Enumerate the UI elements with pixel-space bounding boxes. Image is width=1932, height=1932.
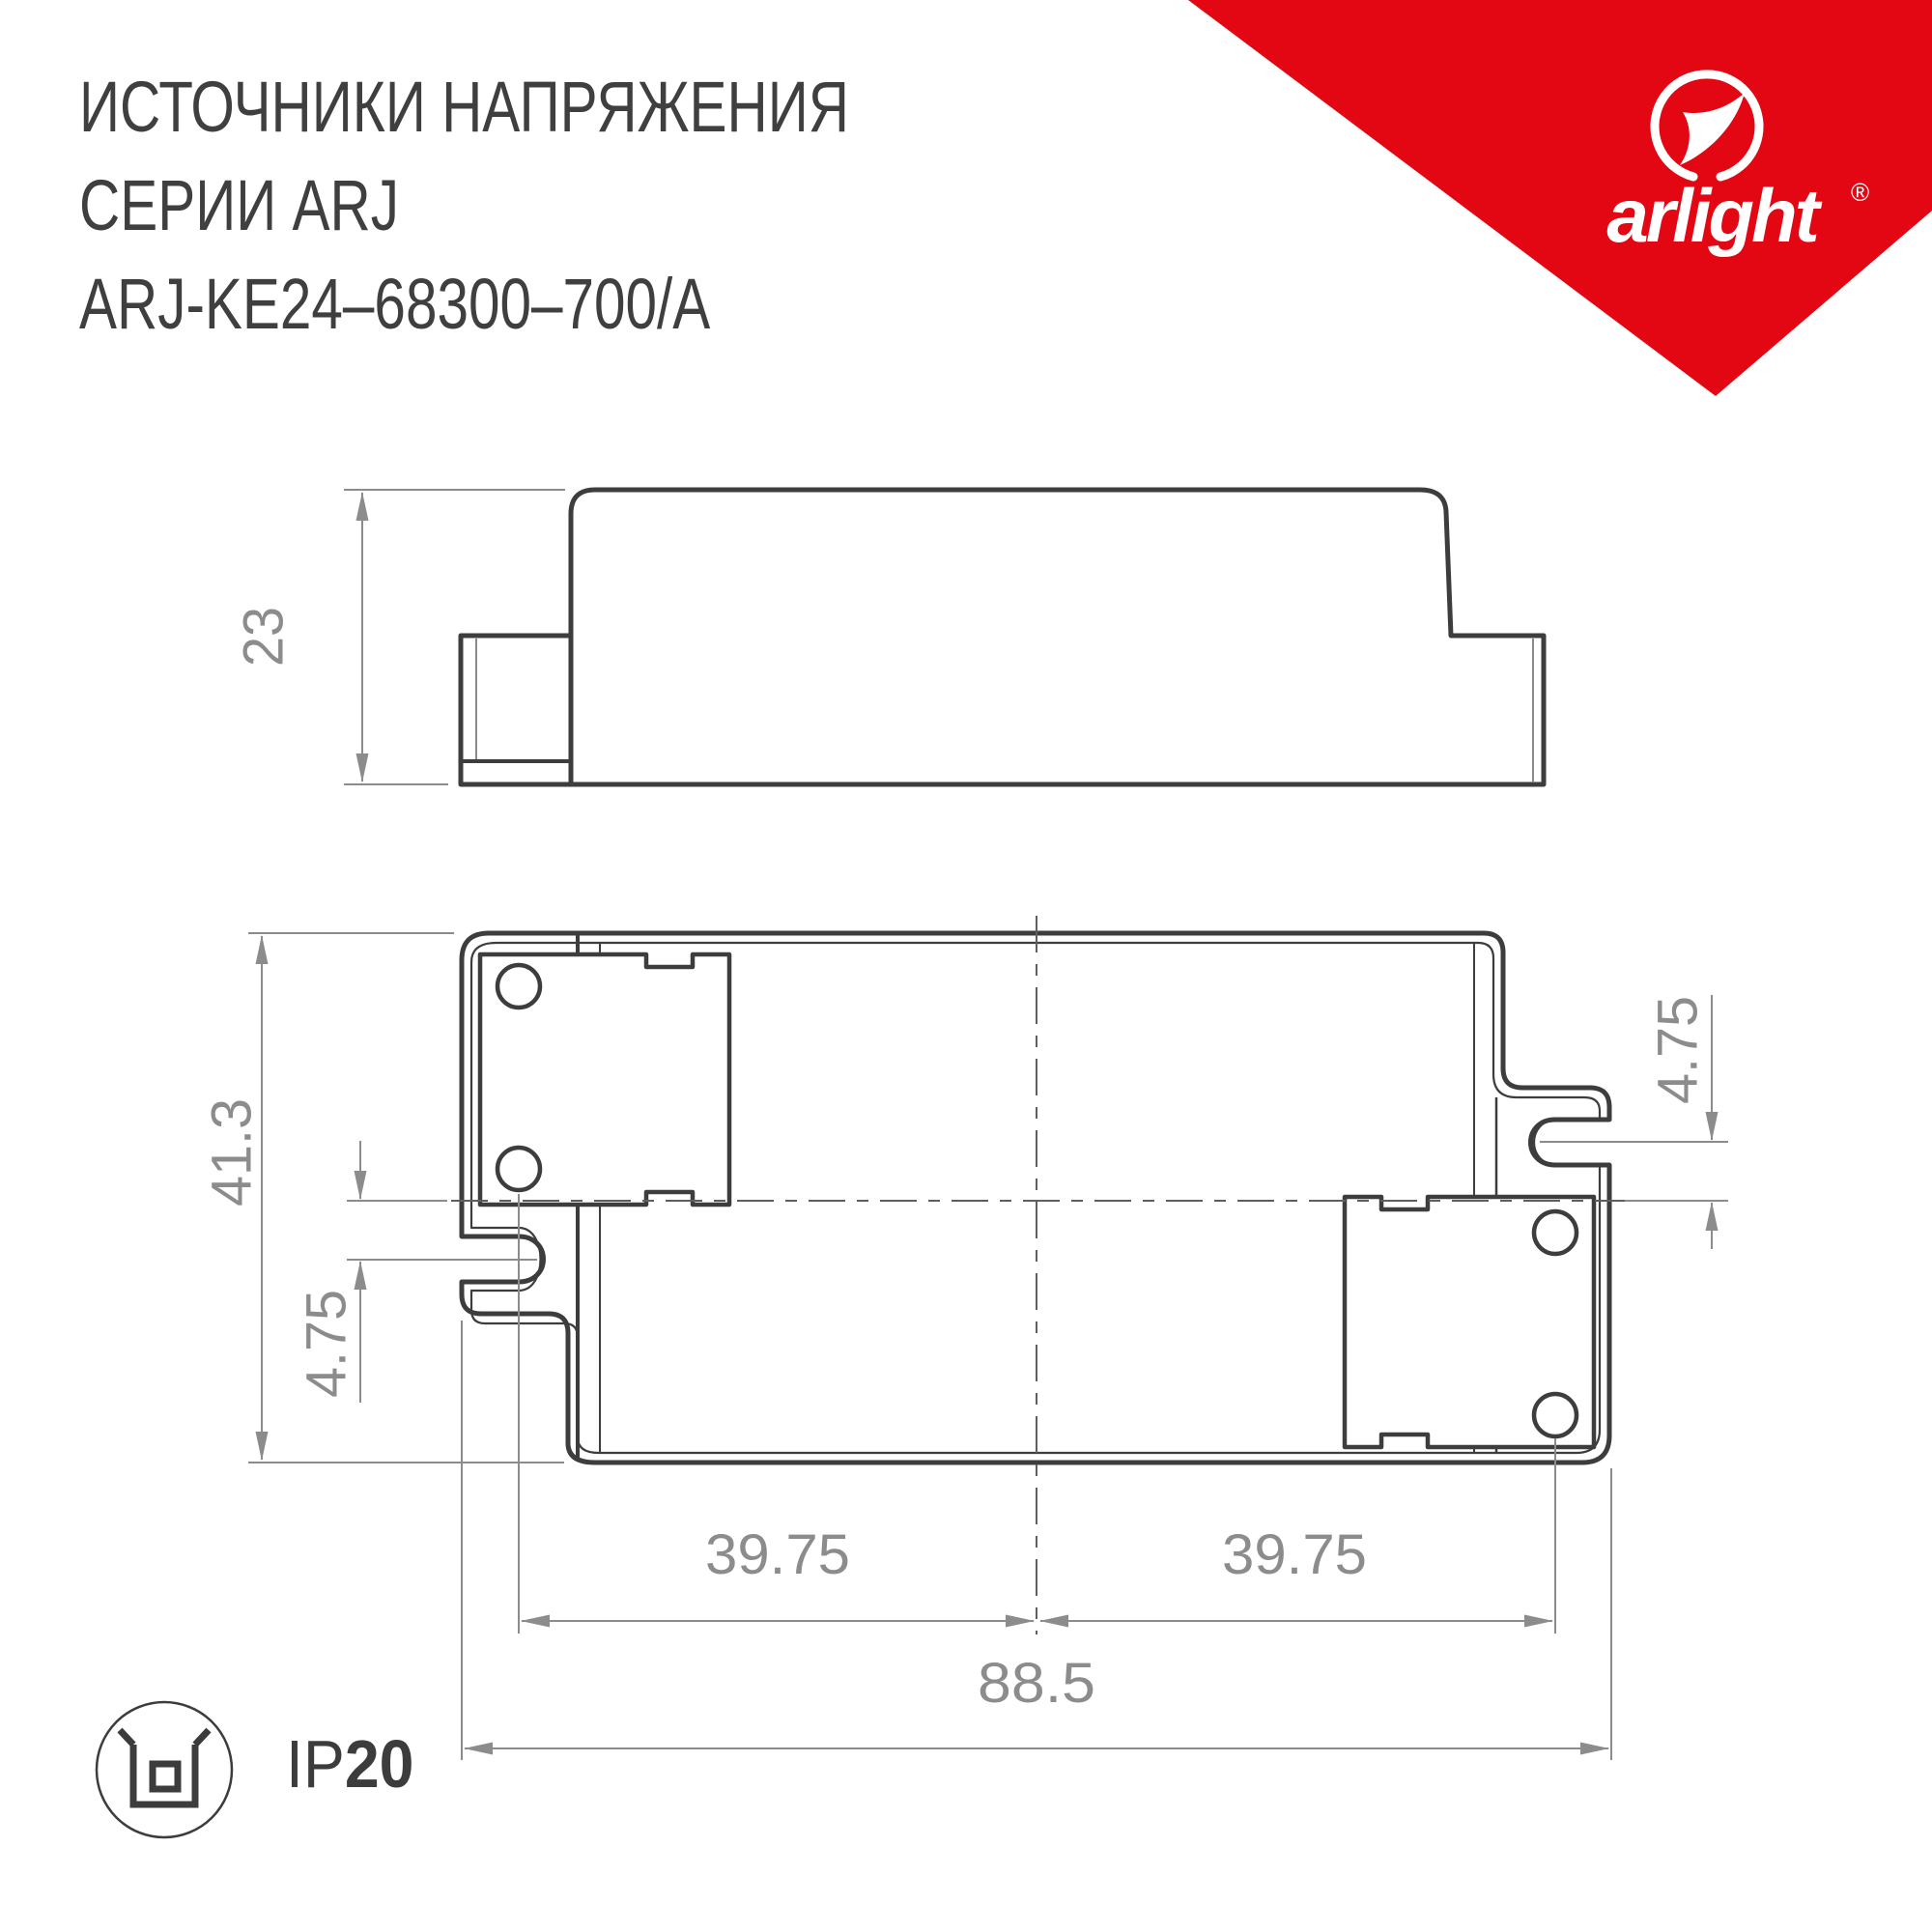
dim-label-slot-offset-left: 4.75 bbox=[296, 1290, 358, 1398]
plan-left-bracket-plate bbox=[480, 954, 729, 1205]
technical-drawing: 23 bbox=[0, 0, 1932, 1932]
page: ИСТОЧНИКИ НАПРЯЖЕНИЯ СЕРИИ ARJ ARJ-KE24–… bbox=[0, 0, 1932, 1932]
dim-label-side-height: 23 bbox=[233, 607, 296, 667]
side-view-outline bbox=[461, 490, 1544, 784]
ip20-badge bbox=[58, 1698, 280, 1853]
dim-label-slot-offset-right: 4.75 bbox=[1647, 996, 1710, 1104]
ip-rating-text: IP20 bbox=[286, 1725, 413, 1803]
dim-label-plan-height: 41.3 bbox=[201, 1098, 264, 1207]
dim-label-overall-width: 88.5 bbox=[978, 1652, 1095, 1715]
dim-label-hole-span-right: 39.75 bbox=[1222, 1523, 1367, 1586]
ip-rating-prefix: IP bbox=[286, 1726, 345, 1802]
side-view: 23 bbox=[233, 490, 1545, 784]
plan-view: 41.3 4.75 4.75 bbox=[201, 916, 1729, 1760]
ip20-enclosure-icon bbox=[120, 1730, 209, 1804]
ip20-badge-circle bbox=[97, 1702, 232, 1837]
dim-label-hole-span-left: 39.75 bbox=[705, 1523, 850, 1586]
ip-rating-value: 20 bbox=[345, 1726, 414, 1802]
plan-right-bracket-plate bbox=[1345, 1197, 1594, 1447]
